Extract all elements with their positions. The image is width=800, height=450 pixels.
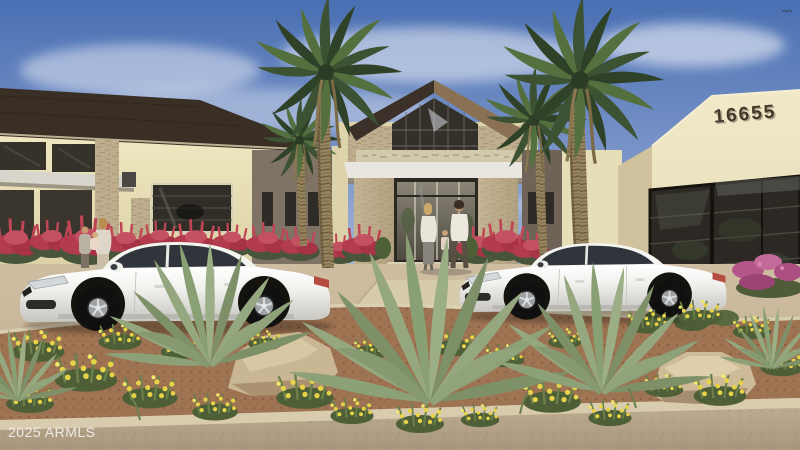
slit-window <box>545 192 554 224</box>
slit-window <box>308 192 319 226</box>
door-bush <box>375 237 391 259</box>
slit-window <box>528 192 537 224</box>
scene-canvas: 16655 16655 <box>0 0 800 450</box>
slit-window <box>285 192 296 226</box>
watermark: 2025 ARMLS <box>8 424 96 440</box>
rendering-photo: 16655 16655 <box>0 0 800 450</box>
awning-end <box>122 172 136 187</box>
entry-sign-band <box>356 150 514 162</box>
entry-canopy <box>344 162 526 178</box>
slit-window <box>262 192 273 226</box>
